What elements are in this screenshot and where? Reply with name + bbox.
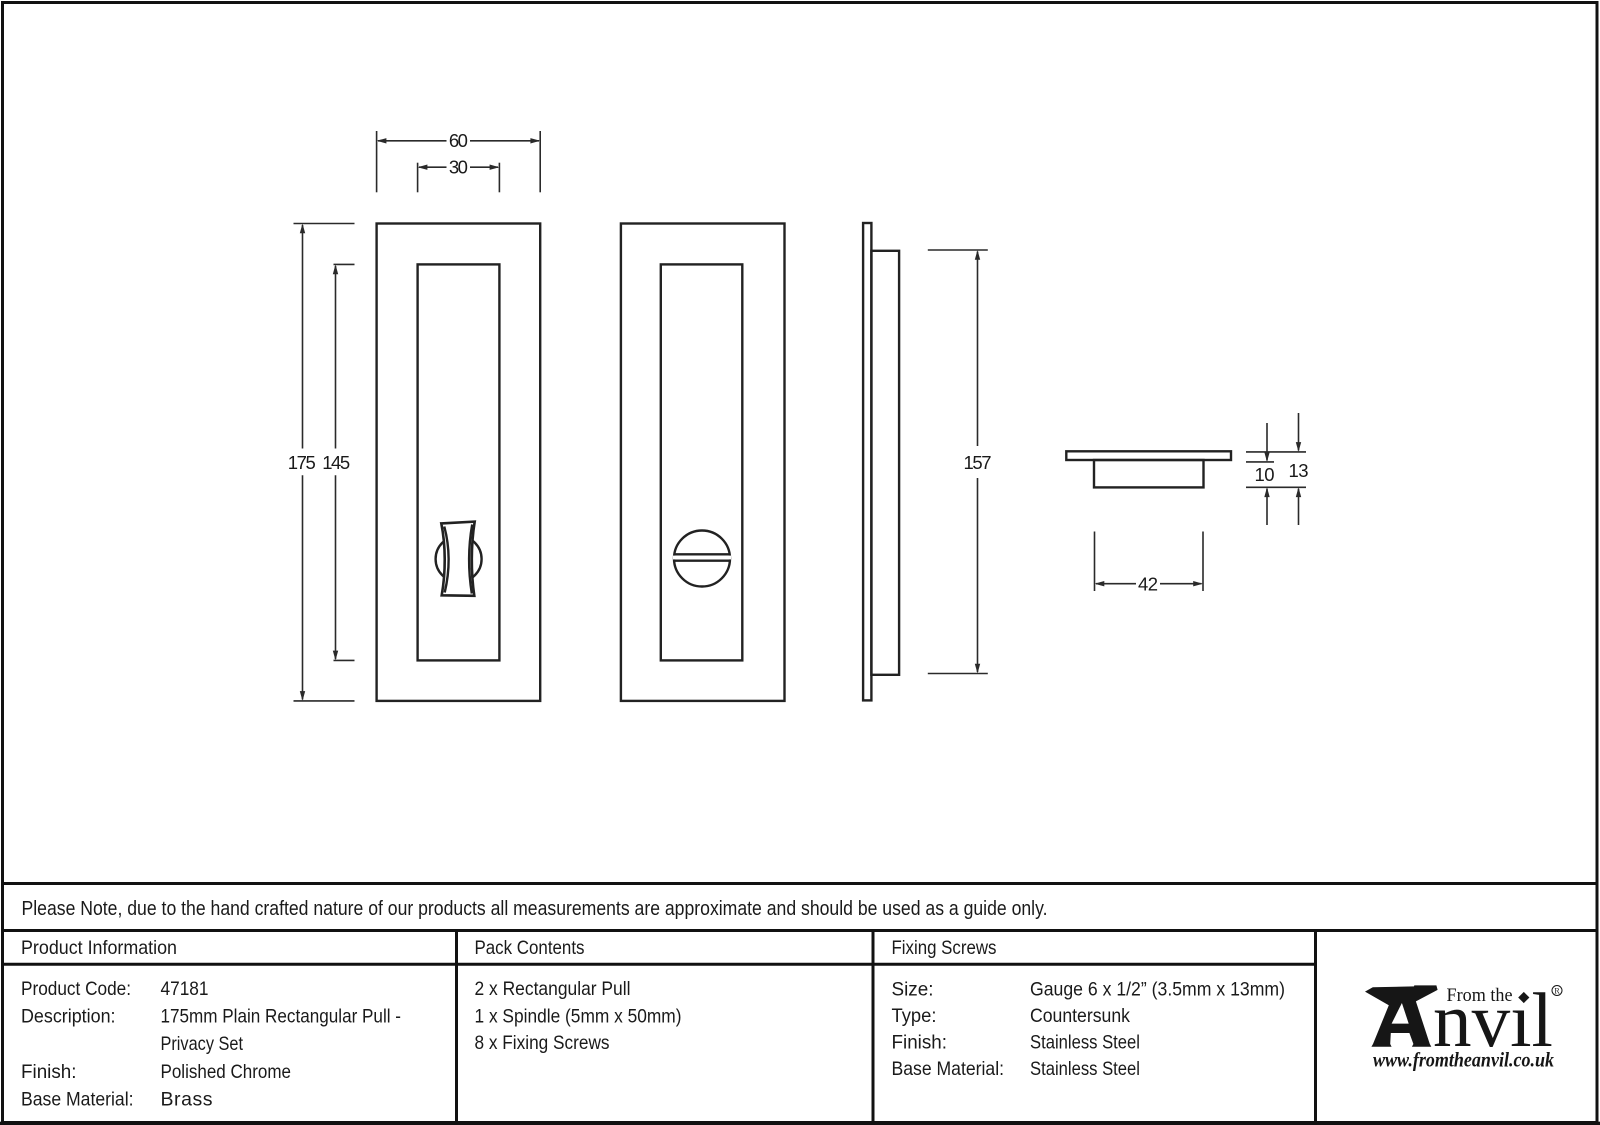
svg-text:Description:: Description: (21, 1006, 116, 1028)
svg-text:Type:: Type: (892, 1005, 937, 1027)
svg-text:Finish:: Finish: (21, 1061, 77, 1083)
svg-text:Finish:: Finish: (892, 1032, 948, 1054)
svg-text:Polished Chrome: Polished Chrome (161, 1061, 292, 1083)
svg-text:47181: 47181 (161, 978, 209, 1000)
svg-text:145: 145 (322, 452, 350, 473)
svg-text:From the: From the (1447, 985, 1513, 1006)
svg-text:1 x Spindle (5mm x 50mm): 1 x Spindle (5mm x 50mm) (475, 1006, 682, 1028)
svg-text:Size:: Size: (892, 979, 934, 1001)
svg-text:Fixing Screws: Fixing Screws (892, 937, 997, 959)
svg-text:Base Material:: Base Material: (892, 1058, 1005, 1080)
svg-text:Stainless Steel: Stainless Steel (1030, 1058, 1140, 1080)
svg-text:Base Material:: Base Material: (21, 1089, 134, 1111)
svg-text:175: 175 (288, 452, 316, 473)
svg-text:157: 157 (964, 452, 992, 473)
svg-text:60: 60 (449, 130, 468, 151)
svg-text:Stainless Steel: Stainless Steel (1030, 1032, 1140, 1054)
svg-text:13: 13 (1289, 460, 1309, 481)
svg-text:Product Information: Product Information (21, 937, 177, 959)
svg-text:Pack Contents: Pack Contents (475, 937, 585, 959)
svg-text:175mm Plain Rectangular Pull -: 175mm Plain Rectangular Pull - (161, 1006, 402, 1028)
svg-text:Brass: Brass (161, 1089, 213, 1111)
svg-text:Countersunk: Countersunk (1030, 1005, 1130, 1027)
svg-text:42: 42 (1138, 573, 1158, 594)
svg-text:Privacy Set: Privacy Set (161, 1033, 244, 1055)
svg-text:Gauge 6 x 1/2” (3.5mm x 13mm): Gauge 6 x 1/2” (3.5mm x 13mm) (1030, 979, 1285, 1001)
svg-text:30: 30 (449, 156, 468, 177)
svg-text:8 x Fixing Screws: 8 x Fixing Screws (475, 1032, 610, 1054)
svg-text:www.fromtheanvil.co.uk: www.fromtheanvil.co.uk (1373, 1048, 1554, 1072)
svg-text:R: R (1554, 986, 1560, 995)
svg-text:10: 10 (1255, 464, 1275, 485)
svg-text:Product Code:: Product Code: (21, 978, 131, 1000)
svg-text:Please Note, due to the hand c: Please Note, due to the hand crafted nat… (22, 898, 1048, 920)
svg-text:2 x Rectangular Pull: 2 x Rectangular Pull (475, 978, 631, 1000)
